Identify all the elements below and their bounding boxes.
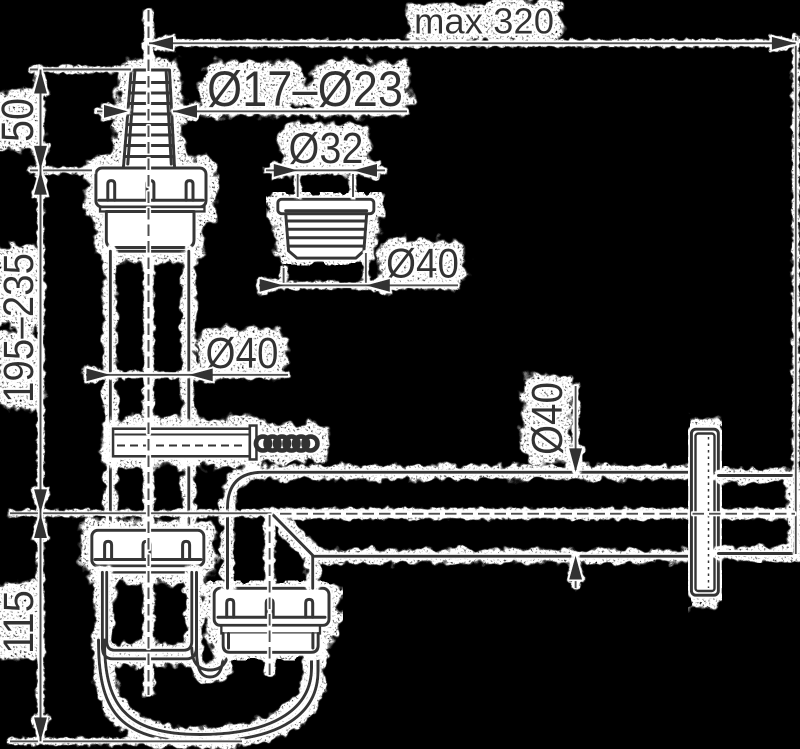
svg-text:50: 50 <box>0 98 43 142</box>
svg-text:Ø40: Ø40 <box>523 382 572 455</box>
svg-text:Ø17–Ø23: Ø17–Ø23 <box>207 61 403 117</box>
svg-text:195–235: 195–235 <box>0 253 43 403</box>
svg-text:max 320: max 320 <box>414 1 554 42</box>
svg-text:Ø40: Ø40 <box>386 240 459 287</box>
svg-text:Ø32: Ø32 <box>289 124 364 173</box>
svg-text:115: 115 <box>0 590 43 654</box>
svg-text:Ø40: Ø40 <box>206 329 279 378</box>
